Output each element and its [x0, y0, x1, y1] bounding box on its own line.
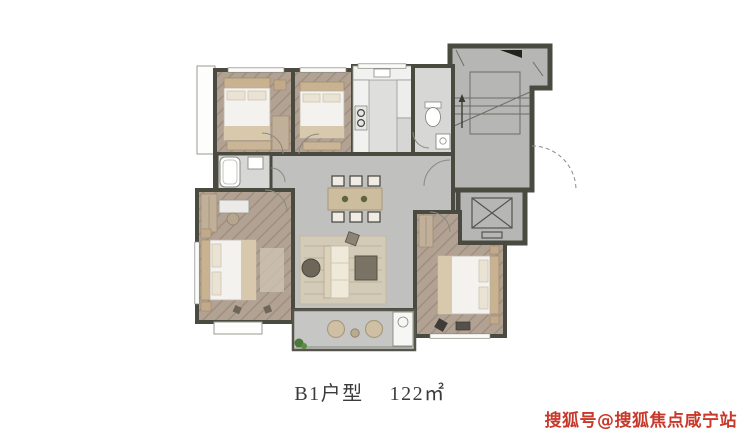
- bedroom-1: [215, 70, 293, 154]
- washbasin-icon: [436, 134, 450, 149]
- living-set: [300, 232, 386, 304]
- balcony-table: [351, 329, 359, 337]
- bed-icon: [224, 78, 270, 140]
- bed-icon: [201, 240, 256, 300]
- tv-bench: [456, 322, 470, 330]
- coffee-table: [355, 256, 377, 280]
- sink: [374, 69, 390, 77]
- balcony-chair: [328, 321, 345, 338]
- bed-icon: [300, 82, 344, 138]
- bathroom-2: [217, 154, 271, 190]
- sofa-icon: [324, 246, 349, 298]
- dining-table: [328, 188, 382, 210]
- fridge: [397, 80, 413, 118]
- floor-plan-page: B1户型122㎡ 搜狐号@搜狐焦点咸宁站: [0, 0, 740, 437]
- dining-set: [328, 176, 382, 222]
- nightstand: [201, 302, 211, 311]
- balcony-chair: [366, 321, 383, 338]
- entry-door-arc: [532, 146, 576, 190]
- watermark-text: 搜狐号@搜狐焦点咸宁站: [545, 406, 738, 431]
- rug: [260, 248, 284, 292]
- cabinet: [397, 118, 413, 154]
- unit-type-label: B1户型: [294, 383, 363, 405]
- wardrobe: [201, 194, 217, 232]
- laundry-cabinet: [393, 312, 413, 346]
- toilet-icon: [425, 102, 441, 127]
- nightstand: [490, 246, 499, 254]
- lounge-chair: [302, 259, 320, 277]
- bench: [303, 142, 341, 150]
- desk-chair: [227, 213, 239, 225]
- wardrobe: [419, 215, 433, 247]
- master-bedroom: [197, 190, 293, 322]
- bedroom-2: [293, 70, 353, 154]
- bench: [227, 141, 271, 150]
- stairwell: [450, 46, 576, 190]
- ac-ledge: [214, 322, 262, 334]
- washbasin-icon: [248, 157, 263, 169]
- bathroom-1: [413, 66, 453, 154]
- unit-caption: B1户型122㎡: [0, 377, 740, 406]
- unit-area-label: 122㎡: [390, 383, 446, 405]
- bay-window: [197, 66, 215, 154]
- nightstand: [490, 316, 499, 324]
- elevator: [458, 190, 525, 243]
- nightstand: [274, 80, 286, 90]
- balcony: [293, 310, 415, 350]
- nightstand: [201, 229, 211, 238]
- bed-icon: [438, 256, 499, 314]
- kitchen: [353, 66, 413, 154]
- stove-icon: [355, 106, 367, 130]
- floor-plan: [0, 0, 740, 437]
